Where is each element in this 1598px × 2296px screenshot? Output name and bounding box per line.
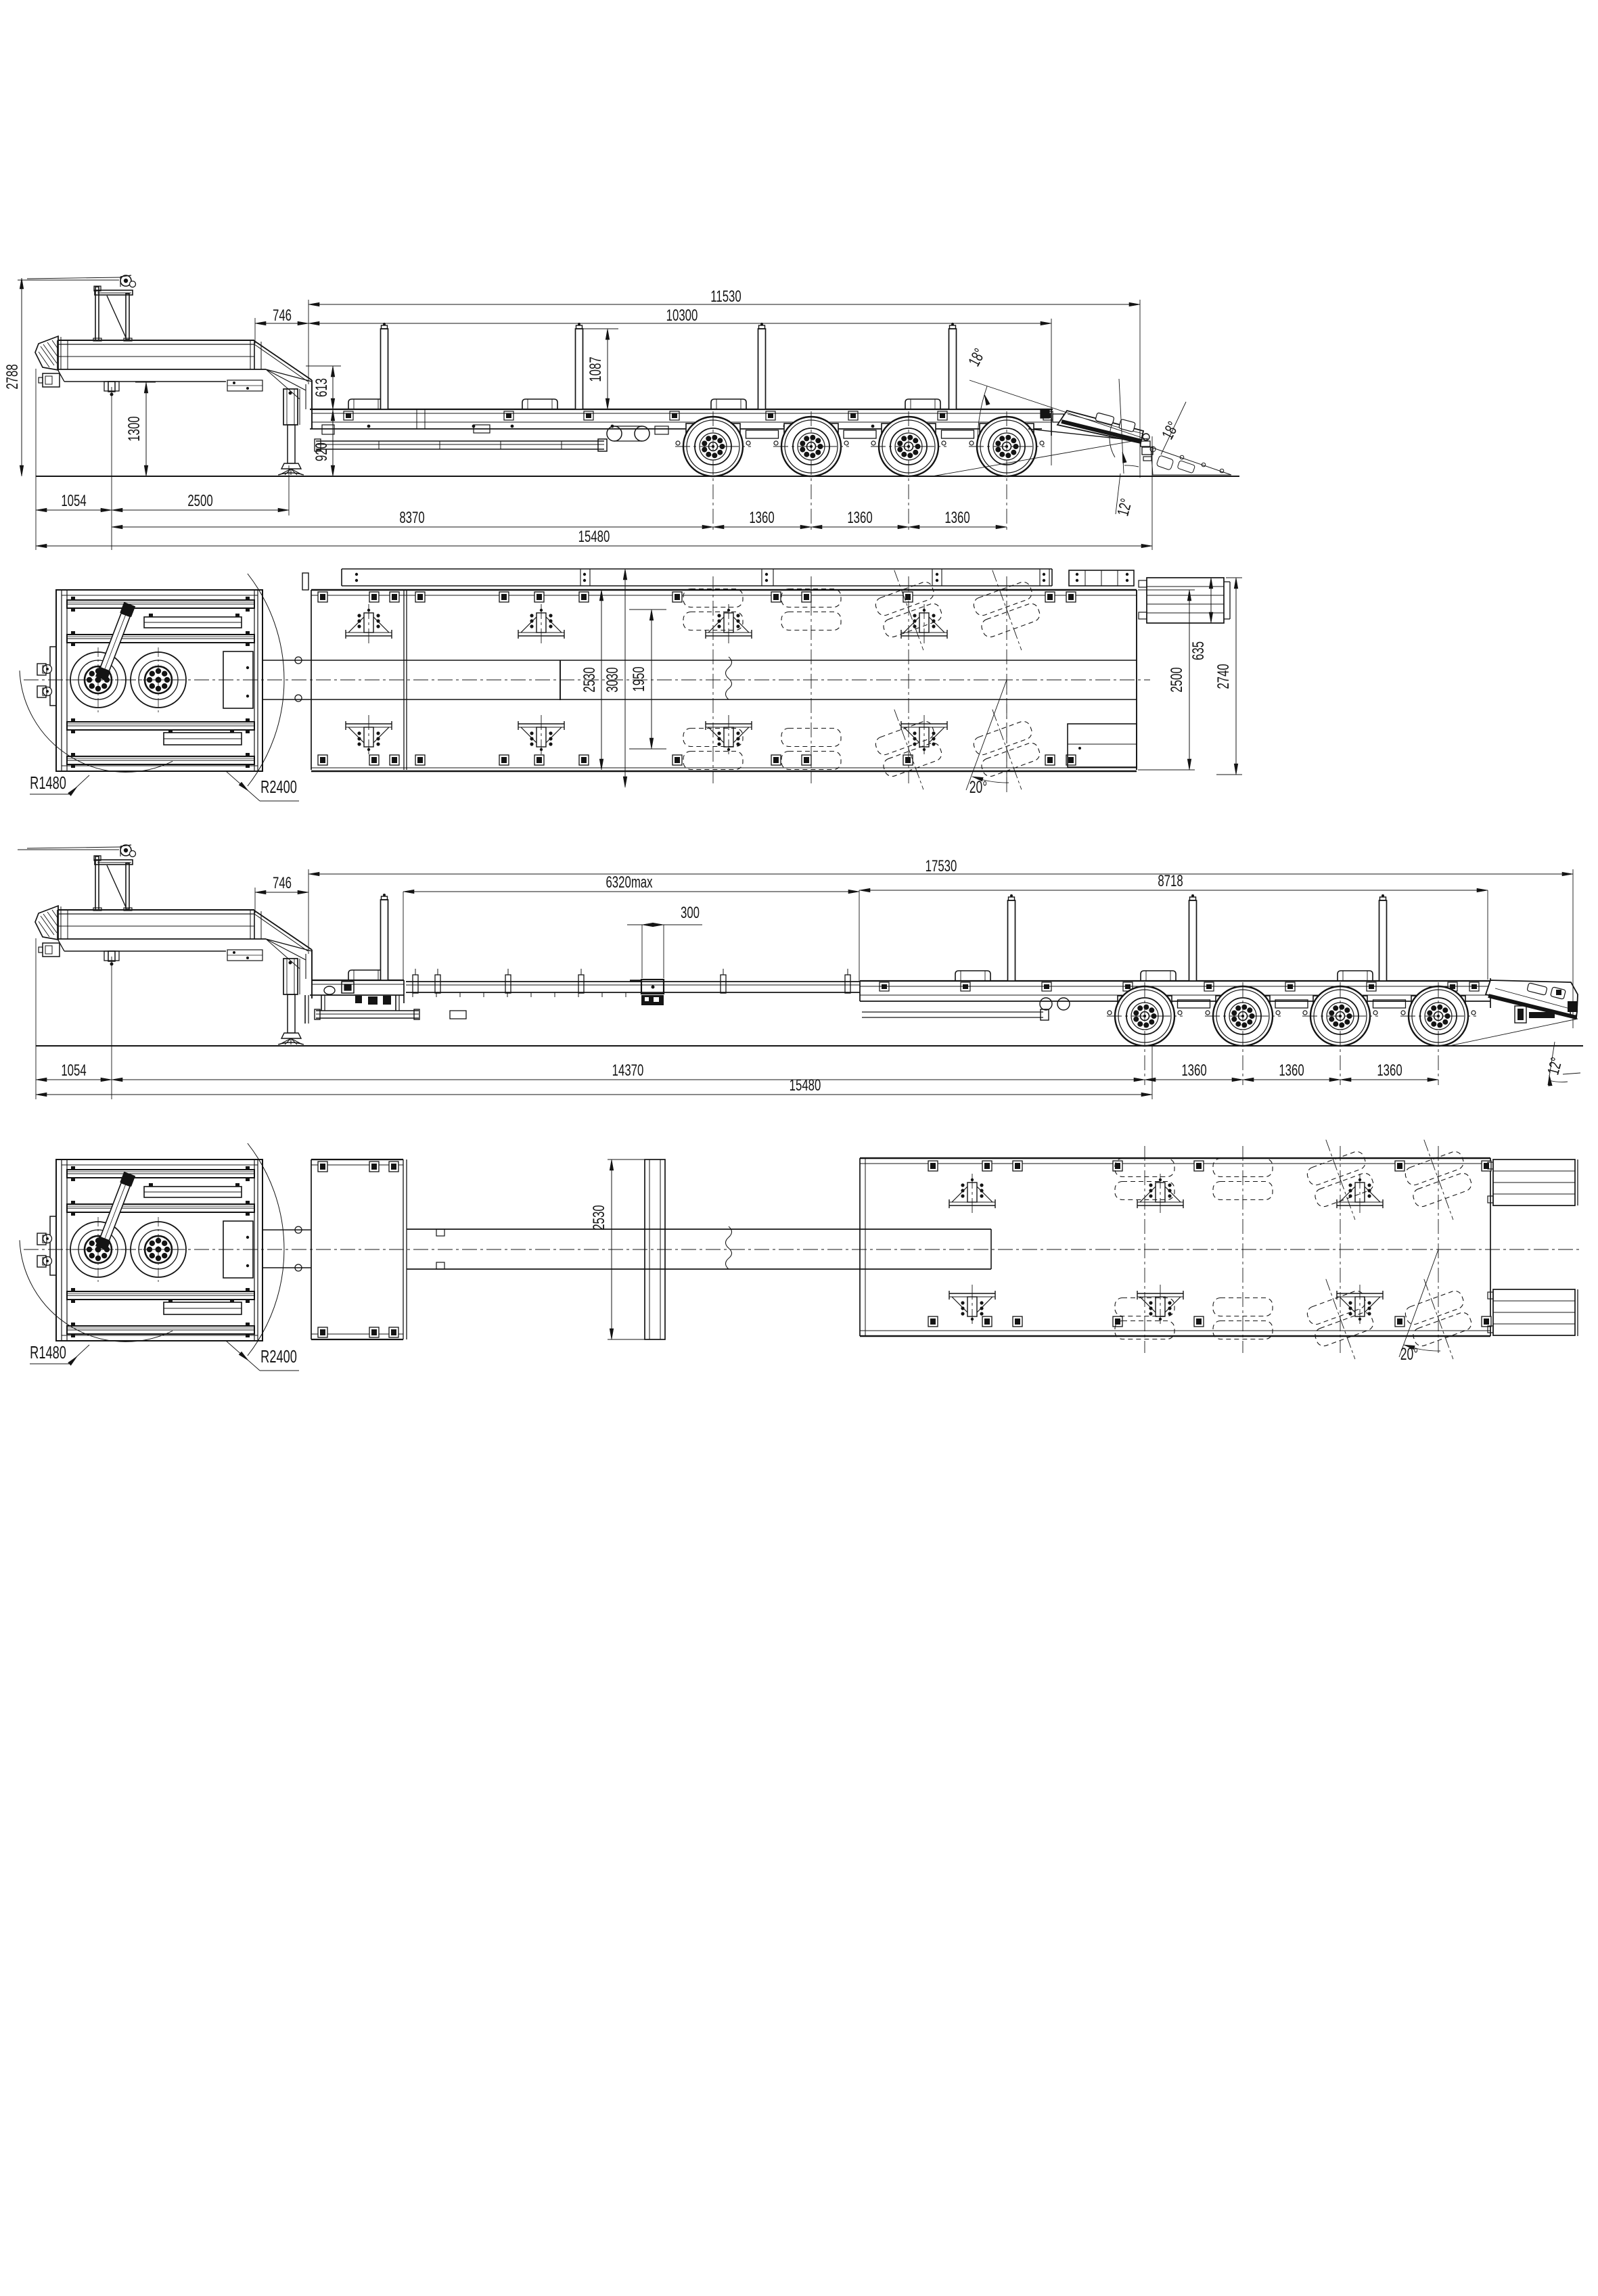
svg-text:1360: 1360 <box>847 509 872 527</box>
svg-text:613: 613 <box>313 378 331 397</box>
svg-text:8718: 8718 <box>1158 872 1183 890</box>
svg-text:1360: 1360 <box>1181 1061 1206 1080</box>
svg-text:1360: 1360 <box>944 509 969 527</box>
svg-text:11530: 11530 <box>710 288 741 306</box>
svg-text:746: 746 <box>273 874 292 892</box>
svg-text:1054: 1054 <box>61 492 86 510</box>
svg-text:2740: 2740 <box>1214 664 1233 689</box>
svg-text:R1480: R1480 <box>30 773 66 793</box>
svg-text:635: 635 <box>1189 641 1208 660</box>
svg-text:2530: 2530 <box>590 1205 608 1230</box>
svg-text:920: 920 <box>313 442 331 461</box>
svg-text:8370: 8370 <box>399 509 424 527</box>
svg-text:1087: 1087 <box>587 357 605 382</box>
svg-text:20°: 20° <box>1400 1344 1418 1364</box>
svg-text:17530: 17530 <box>926 857 957 875</box>
svg-text:1360: 1360 <box>1377 1061 1402 1080</box>
svg-text:1300: 1300 <box>125 416 143 441</box>
svg-text:1950: 1950 <box>630 666 648 691</box>
svg-text:3030: 3030 <box>603 667 622 692</box>
svg-text:10300: 10300 <box>666 306 698 325</box>
svg-text:15480: 15480 <box>578 528 610 546</box>
svg-text:20°: 20° <box>969 777 987 797</box>
svg-text:14370: 14370 <box>612 1061 644 1080</box>
svg-text:2788: 2788 <box>3 364 22 389</box>
svg-text:2530: 2530 <box>580 667 599 692</box>
svg-text:2500: 2500 <box>187 492 212 510</box>
svg-text:6320max: 6320max <box>606 873 653 892</box>
svg-text:R2400: R2400 <box>260 1347 297 1367</box>
svg-text:R1480: R1480 <box>30 1343 66 1362</box>
svg-text:746: 746 <box>273 306 292 325</box>
svg-text:15480: 15480 <box>790 1076 821 1095</box>
svg-text:1360: 1360 <box>1279 1061 1304 1080</box>
svg-text:300: 300 <box>681 904 700 922</box>
svg-text:1054: 1054 <box>61 1061 86 1080</box>
svg-text:R2400: R2400 <box>260 777 297 797</box>
svg-text:2500: 2500 <box>1168 667 1186 692</box>
svg-text:1360: 1360 <box>749 509 774 527</box>
